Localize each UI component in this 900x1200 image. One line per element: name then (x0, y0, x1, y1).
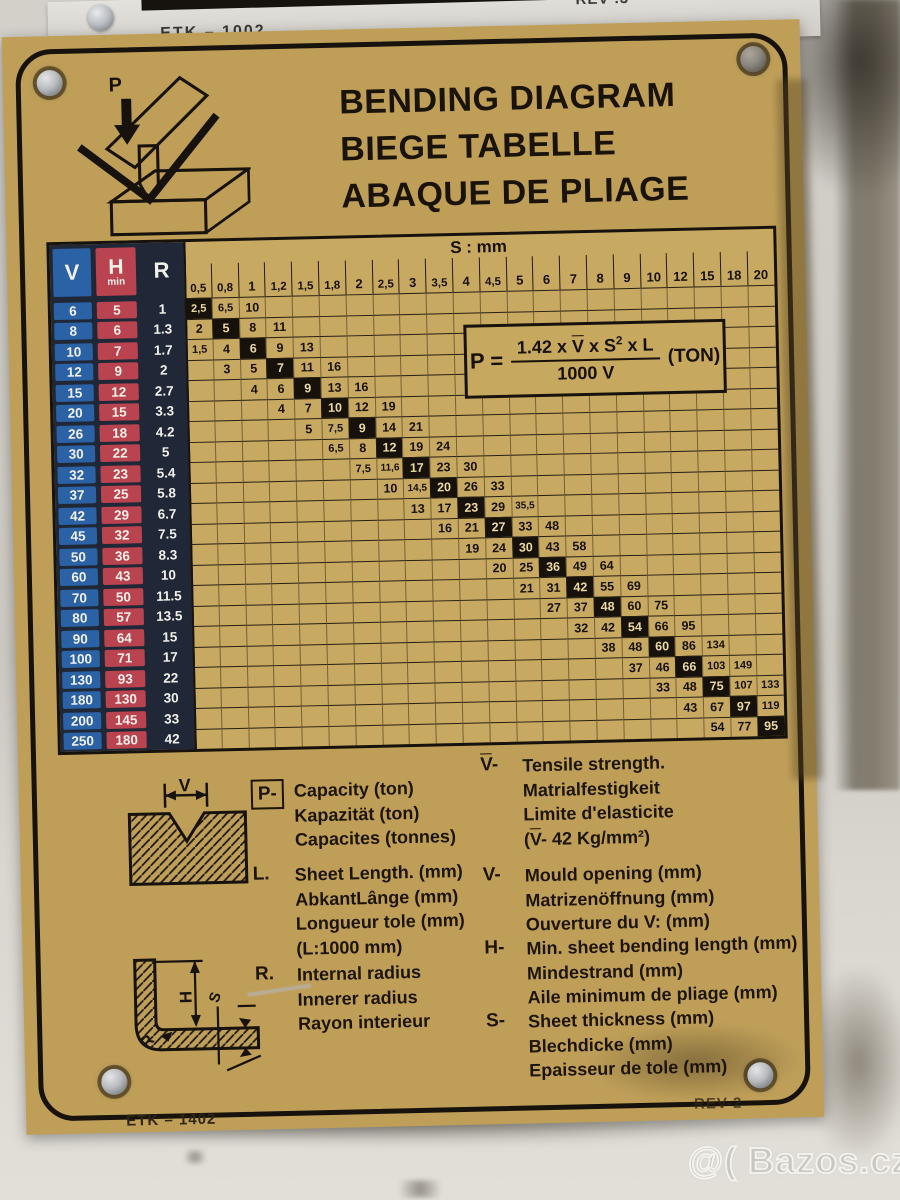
h-value: 7 (98, 342, 138, 360)
empty-grid-cell (727, 572, 754, 593)
empty-grid-cell (426, 313, 453, 334)
tonnage-cell: 103 (702, 655, 729, 676)
v-value: 100 (62, 650, 100, 668)
v-value: 200 (63, 712, 101, 730)
tonnage-cell: 13 (293, 336, 320, 357)
empty-grid-cell (192, 605, 219, 626)
tonnage-cell: 77 (730, 716, 757, 737)
tonnage-cell: 24 (429, 435, 456, 456)
r-value: 2.7 (141, 380, 186, 402)
empty-grid-cell (377, 519, 404, 540)
legend-lines: Sheet thickness (mm)Blechdicke (mm)Epais… (528, 1005, 728, 1083)
empty-grid-cell (595, 678, 622, 699)
empty-grid-cell (726, 511, 753, 532)
empty-grid-cell (569, 678, 596, 699)
tonnage-cell-recommended: 2,5 (185, 298, 212, 319)
tonnage-cell: 16 (347, 376, 374, 397)
tonnage-cell: 30 (456, 455, 483, 476)
empty-grid-cell (381, 662, 408, 683)
empty-grid-cell (541, 659, 568, 680)
empty-grid-cell (355, 724, 382, 745)
empty-grid-cell (269, 460, 296, 481)
tonnage-cell: 31 (539, 577, 566, 598)
empty-grid-cell (514, 659, 541, 680)
strip-screw-icon (88, 4, 115, 31)
tonnage-cell: 25 (512, 557, 539, 578)
r-value: 30 (148, 688, 193, 710)
empty-grid-cell (319, 294, 346, 315)
legend-line: Internal radius (297, 960, 430, 987)
empty-grid-cell (533, 290, 560, 311)
empty-grid-cell (645, 492, 672, 513)
empty-grid-cell (245, 583, 272, 604)
empty-grid-cell (568, 637, 595, 658)
empty-grid-cell (189, 502, 216, 523)
s-column-header: 8 (586, 254, 614, 289)
empty-grid-cell (752, 510, 779, 531)
tonnage-cell: 6,5 (211, 297, 238, 318)
empty-grid-cell (727, 593, 754, 614)
tonnage-cell: 4 (212, 338, 239, 359)
s-column-header: 0,8 (211, 263, 239, 298)
empty-grid-cell (748, 326, 775, 347)
empty-grid-cell (374, 375, 401, 396)
tonnage-cell: 21 (458, 517, 485, 538)
formula-box: P = 1.42 x V x S2 x L 1000 V (TON) (463, 319, 727, 399)
empty-grid-cell (487, 619, 514, 640)
tonnage-cell-recommended: 30 (512, 536, 539, 557)
empty-grid-cell (190, 543, 217, 564)
tonnage-cell: 33 (484, 475, 511, 496)
tonnage-cell: 33 (511, 516, 538, 537)
empty-grid-cell (643, 410, 670, 431)
empty-grid-cell (347, 355, 374, 376)
empty-grid-cell (489, 701, 516, 722)
v-value: 42 (58, 507, 96, 525)
empty-grid-cell (727, 552, 754, 573)
empty-grid-cell (296, 480, 323, 501)
v-value: 180 (63, 691, 101, 709)
h-value: 6 (97, 321, 137, 339)
legend-line: (V- 42 Kg/mm²) (524, 824, 675, 852)
empty-grid-cell (429, 415, 456, 436)
empty-grid-cell (216, 502, 243, 523)
tonnage-cell: 11 (265, 316, 292, 337)
empty-grid-cell (725, 470, 752, 491)
tonnage-cell: 7 (294, 398, 321, 419)
tonnage-cell: 23 (429, 456, 456, 477)
empty-grid-cell (405, 539, 432, 560)
empty-grid-cell (677, 717, 704, 738)
r-value: 2 (141, 360, 186, 382)
empty-grid-cell (564, 473, 591, 494)
empty-grid-cell (596, 698, 623, 719)
empty-grid-cell (247, 665, 274, 686)
empty-grid-cell (186, 379, 213, 400)
empty-grid-cell (460, 640, 487, 661)
empty-grid-cell (542, 679, 569, 700)
empty-grid-cell (301, 684, 328, 705)
legend-left-block-2: R.Internal radiusInnerer radiusRayon int… (255, 960, 431, 1037)
empty-grid-cell (300, 664, 327, 685)
tonnage-cell: 27 (540, 597, 567, 618)
h-value: 12 (99, 383, 139, 401)
empty-grid-cell (569, 699, 596, 720)
formula-denominator: 1000 V (557, 360, 615, 384)
empty-grid-cell (543, 720, 570, 741)
legend-symbol: H- (484, 937, 518, 1011)
empty-grid-cell (536, 433, 563, 454)
empty-grid-cell (188, 461, 215, 482)
empty-grid-cell (379, 601, 406, 622)
v-value: 6 (54, 302, 92, 320)
tonnage-cell: 11,6 (376, 457, 403, 478)
h-value: 57 (104, 608, 144, 626)
h-value: 130 (106, 690, 146, 708)
empty-grid-cell (623, 718, 650, 739)
r-value: 33 (149, 708, 194, 730)
die-opening-label: V (178, 775, 190, 795)
empty-grid-cell (247, 706, 274, 727)
plate-footer-right: REV-2 (694, 1095, 743, 1113)
v-value: 80 (61, 609, 99, 627)
empty-grid-cell (273, 644, 300, 665)
empty-grid-cell (431, 538, 458, 559)
tonnage-cell: 37 (622, 657, 649, 678)
tonnage-cell-recommended: 9 (348, 417, 375, 438)
empty-grid-cell (506, 290, 533, 311)
empty-grid-cell (319, 315, 346, 336)
empty-grid-cell (243, 522, 270, 543)
tonnage-cell: 38 (594, 637, 621, 658)
tonnage-cell: 46 (648, 656, 675, 677)
tonnage-cell: 16 (431, 517, 458, 538)
tonnage-cell: 16 (320, 356, 347, 377)
empty-grid-cell (270, 501, 297, 522)
strip-rev-label: REV .3 (575, 0, 629, 8)
empty-grid-cell (215, 440, 242, 461)
empty-grid-cell (275, 726, 302, 747)
tonnage-cell: 42 (594, 616, 621, 637)
empty-grid-cell (297, 541, 324, 562)
empty-grid-cell (191, 584, 218, 605)
r-value: 3.3 (142, 401, 187, 423)
empty-grid-cell (755, 613, 782, 634)
title-block: BENDING DIAGRAM BIEGE TABELLE ABAQUE DE … (339, 70, 772, 221)
empty-grid-cell (700, 573, 727, 594)
empty-grid-cell (751, 469, 778, 490)
empty-grid-cell (247, 686, 274, 707)
empty-grid-cell (592, 534, 619, 555)
empty-grid-cell (510, 475, 537, 496)
empty-grid-cell (323, 499, 350, 520)
empty-grid-cell (563, 453, 590, 474)
s-column-header: 2 (345, 260, 373, 295)
empty-grid-cell (748, 305, 775, 326)
empty-grid-cell (592, 514, 619, 535)
h-value: 23 (100, 465, 140, 483)
tonnage-cell: 14,5 (403, 477, 430, 498)
s-column-header: 15 (693, 252, 721, 287)
empty-grid-cell (537, 454, 564, 475)
r-value: 1 (140, 298, 185, 320)
empty-grid-cell (595, 657, 622, 678)
empty-grid-cell (194, 707, 221, 728)
legend-right-block-3: S-Sheet thickness (mm)Blechdicke (mm)Epa… (486, 1005, 728, 1084)
tonnage-cell-recommended: 23 (457, 496, 484, 517)
r-value: 8.3 (145, 544, 190, 566)
empty-grid-cell (514, 618, 541, 639)
legend-line: Mould opening (mm) (525, 859, 714, 888)
empty-grid-cell (459, 558, 486, 579)
empty-grid-cell (455, 414, 482, 435)
empty-grid-cell (355, 704, 382, 725)
tonnage-cell: 58 (565, 535, 592, 556)
empty-grid-cell (515, 680, 542, 701)
empty-grid-cell (299, 602, 326, 623)
tonnage-cell: 37 (567, 596, 594, 617)
empty-grid-cell (482, 414, 509, 435)
s-column-header: 1,8 (318, 260, 346, 295)
bending-table: VHminR651861.31071.7129215122.720153.326… (46, 226, 787, 755)
empty-grid-cell (486, 578, 513, 599)
watermark: @( Bazos.cz (688, 1140, 900, 1182)
s-column-header: 1,2 (264, 262, 292, 297)
empty-grid-cell (432, 558, 459, 579)
legend-line: Longueur tole (mm) (296, 908, 466, 936)
empty-grid-cell (353, 622, 380, 643)
v-value: 30 (57, 445, 95, 463)
vhr-header-block: VHminR651861.31071.7129215122.720153.326… (49, 242, 196, 752)
empty-grid-cell (302, 725, 329, 746)
empty-grid-cell (400, 334, 427, 355)
empty-grid-cell (569, 719, 596, 740)
empty-grid-cell (433, 620, 460, 641)
legend-line: Kapazität (ton) (294, 800, 456, 828)
s-column-header: 2,5 (371, 259, 399, 294)
empty-grid-cell (671, 451, 698, 472)
tonnage-cell: 19 (374, 396, 401, 417)
legend-line: Capacity (ton) (294, 775, 456, 803)
empty-grid-cell (434, 661, 461, 682)
empty-grid-cell (214, 399, 241, 420)
empty-grid-cell (435, 702, 462, 723)
empty-grid-cell (193, 666, 220, 687)
h-value: 50 (103, 588, 143, 606)
empty-grid-cell (590, 452, 617, 473)
empty-grid-cell (346, 314, 373, 335)
tonnage-cell-recommended: 66 (675, 655, 702, 676)
empty-grid-cell (242, 481, 269, 502)
tonnage-cell: 19 (402, 436, 429, 457)
empty-grid-cell (324, 540, 351, 561)
h-value: 43 (103, 567, 143, 585)
formula-lhs: P = (470, 348, 504, 375)
empty-grid-cell (541, 638, 568, 659)
tonnage-cell: 35,5 (511, 495, 538, 516)
tonnage-cell-recommended: 10 (321, 397, 348, 418)
empty-grid-cell (565, 514, 592, 535)
empty-grid-cell (462, 722, 489, 743)
empty-grid-cell (488, 680, 515, 701)
formula-unit: (TON) (668, 345, 721, 368)
tonnage-cell: 17 (430, 497, 457, 518)
tonnage-cell: 69 (620, 575, 647, 596)
tonnage-cell: 21 (402, 416, 429, 437)
empty-grid-cell (753, 551, 780, 572)
empty-grid-cell (408, 703, 435, 724)
v-value: 250 (63, 732, 101, 750)
empty-grid-cell (646, 533, 673, 554)
r-value: 1.3 (140, 319, 185, 341)
tonnage-cell-recommended: 95 (757, 715, 784, 736)
legend-lines: Tensile strength.MatrialfestigkeitLimite… (522, 750, 675, 851)
s-column-header: 9 (613, 254, 641, 289)
tonnage-cell-recommended: 48 (593, 596, 620, 617)
empty-grid-cell (616, 411, 643, 432)
empty-grid-cell (513, 598, 540, 619)
legend-lines: Internal radiusInnerer radiusRayon inter… (297, 960, 431, 1036)
r-value: 10 (146, 565, 191, 587)
legend-right-block-2: H-Min. sheet bending length (mm)Mindestr… (484, 930, 799, 1011)
v-value: 32 (57, 466, 95, 484)
empty-grid-cell (213, 379, 240, 400)
s-column-header: 20 (746, 251, 774, 286)
v-value: 90 (61, 630, 99, 648)
empty-grid-cell (724, 429, 751, 450)
legend-symbol: V- (480, 754, 514, 853)
r-value: 5.8 (144, 483, 189, 505)
tonnage-cell-recommended: 36 (539, 556, 566, 577)
plate-footer-left: ETK – 1402 (126, 1111, 216, 1130)
empty-grid-cell (192, 625, 219, 646)
empty-grid-cell (644, 472, 671, 493)
legend-lines: Capacity (ton)Kapazität (ton)Capacites (… (294, 775, 457, 852)
tonnage-cell-recommended: 60 (648, 636, 675, 657)
empty-grid-cell (216, 481, 243, 502)
tonnage-cell: 7,5 (349, 458, 376, 479)
tonnage-cell-recommended: 97 (730, 695, 757, 716)
empty-grid-cell (426, 292, 453, 313)
empty-grid-cell (404, 518, 431, 539)
empty-grid-cell (320, 335, 347, 356)
empty-grid-cell (345, 294, 372, 315)
empty-grid-cell (427, 333, 454, 354)
empty-grid-cell (697, 429, 724, 450)
h-value: 64 (104, 629, 144, 647)
empty-grid-cell (650, 718, 677, 739)
empty-grid-cell (217, 563, 244, 584)
empty-grid-cell (542, 699, 569, 720)
empty-grid-cell (701, 614, 728, 635)
empty-grid-cell (433, 599, 460, 620)
empty-grid-cell (272, 624, 299, 645)
empty-grid-cell (483, 434, 510, 455)
tonnage-cell: 6,5 (322, 438, 349, 459)
empty-grid-cell (750, 408, 777, 429)
empty-grid-cell (269, 480, 296, 501)
empty-grid-cell (617, 431, 644, 452)
empty-grid-cell (380, 642, 407, 663)
empty-grid-cell (298, 562, 325, 583)
empty-grid-cell (354, 683, 381, 704)
tonnage-cell: 20 (485, 557, 512, 578)
empty-grid-cell (380, 621, 407, 642)
empty-grid-cell (350, 499, 377, 520)
empty-grid-cell (354, 663, 381, 684)
empty-grid-cell (509, 434, 536, 455)
empty-grid-cell (453, 291, 480, 312)
upper-plate-fragment (141, 0, 747, 11)
empty-grid-cell (215, 461, 242, 482)
empty-grid-cell (432, 579, 459, 600)
empty-grid-cell (327, 684, 354, 705)
empty-grid-cell (292, 295, 319, 316)
empty-grid-cell (328, 725, 355, 746)
empty-grid-cell (399, 313, 426, 334)
empty-grid-cell (428, 374, 455, 395)
empty-grid-cell (697, 450, 724, 471)
s-column-header: 1,5 (291, 261, 319, 296)
empty-grid-cell (379, 580, 406, 601)
empty-grid-cell (325, 561, 352, 582)
tonnage-cell: 134 (702, 634, 729, 655)
empty-grid-cell (405, 580, 432, 601)
tonnage-cell: 12 (348, 396, 375, 417)
tonnage-cell: 1,5 (186, 338, 213, 359)
empty-grid-cell (241, 440, 268, 461)
empty-grid-cell (401, 395, 428, 416)
empty-grid-cell (381, 703, 408, 724)
wall-speck (180, 1150, 210, 1164)
empty-grid-cell (751, 449, 778, 470)
empty-grid-cell (540, 618, 567, 639)
empty-grid-cell (698, 470, 725, 491)
v-value: 8 (54, 322, 92, 340)
empty-grid-cell (300, 643, 327, 664)
empty-grid-cell (193, 687, 220, 708)
tonnage-cell-recommended: 6 (239, 337, 266, 358)
h-value: 71 (105, 649, 145, 667)
empty-grid-cell (514, 639, 541, 660)
empty-grid-cell (325, 581, 352, 602)
empty-grid-cell (297, 521, 324, 542)
h-column-header: Hmin (95, 247, 136, 296)
v-value: 37 (58, 486, 96, 504)
empty-grid-cell (381, 683, 408, 704)
empty-grid-cell (373, 334, 400, 355)
empty-grid-cell (460, 619, 487, 640)
empty-grid-cell (326, 602, 353, 623)
empty-grid-cell (667, 287, 694, 308)
empty-grid-cell (640, 287, 667, 308)
empty-grid-cell (672, 512, 699, 533)
empty-grid-cell (618, 493, 645, 514)
empty-grid-cell (299, 623, 326, 644)
empty-grid-cell (323, 479, 350, 500)
empty-grid-cell (700, 552, 727, 573)
empty-grid-cell (378, 560, 405, 581)
empty-grid-cell (698, 491, 725, 512)
tonnage-cell-recommended: 5 (212, 317, 239, 338)
legend-lines: Min. sheet bending length (mm)Mindestran… (526, 930, 799, 1010)
empty-grid-cell (271, 542, 298, 563)
empty-grid-cell (645, 513, 672, 534)
empty-grid-cell (301, 705, 328, 726)
empty-grid-cell (672, 532, 699, 553)
tonnage-cell: 10 (376, 478, 403, 499)
tonnage-cell-recommended: 17 (403, 457, 430, 478)
